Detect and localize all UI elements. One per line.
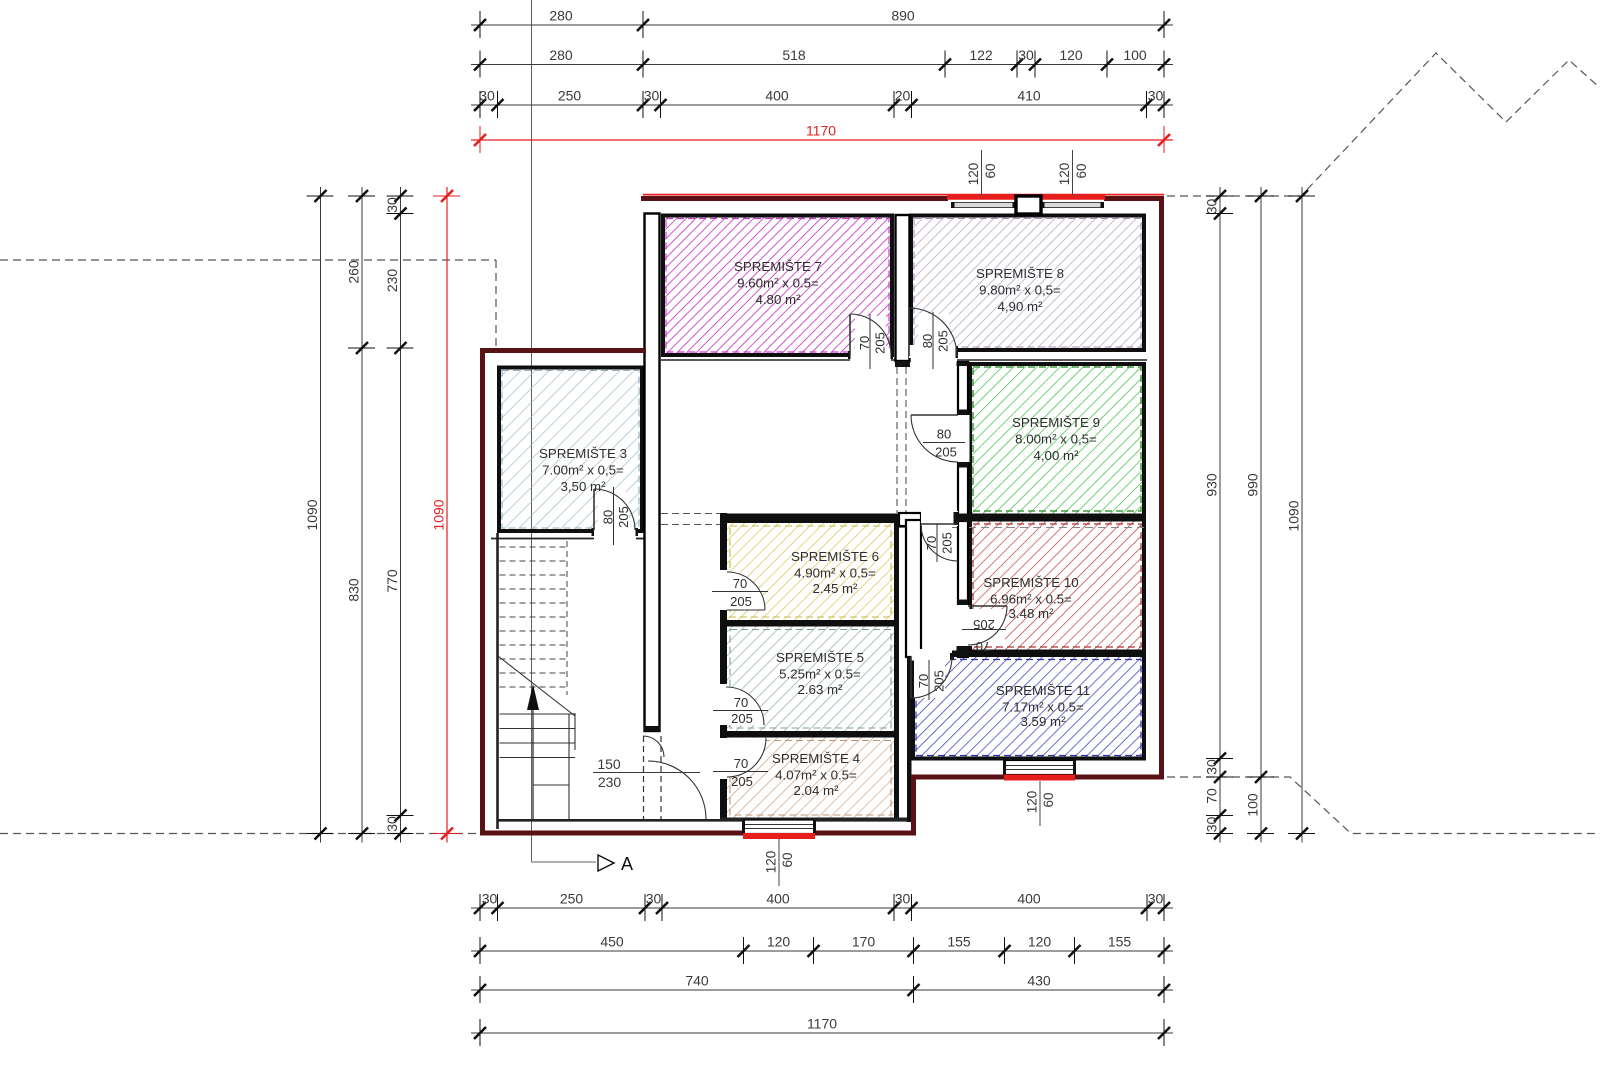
svg-text:120: 120 [1057, 163, 1072, 186]
svg-text:205: 205 [940, 532, 955, 554]
svg-text:280: 280 [549, 47, 573, 63]
svg-text:410: 410 [1017, 88, 1041, 104]
svg-text:1090: 1090 [431, 499, 447, 530]
svg-text:150: 150 [597, 756, 621, 772]
svg-text:205: 205 [873, 332, 888, 354]
svg-text:30: 30 [1204, 199, 1220, 215]
svg-text:3.48 m²: 3.48 m² [1008, 606, 1054, 621]
svg-text:70: 70 [734, 695, 748, 710]
svg-text:120: 120 [1025, 791, 1040, 814]
svg-text:4,90 m²: 4,90 m² [997, 299, 1043, 314]
svg-text:8.00m² x 0,5=: 8.00m² x 0,5= [1015, 432, 1097, 447]
svg-text:120: 120 [764, 851, 779, 874]
svg-text:100: 100 [1123, 47, 1147, 63]
svg-text:120: 120 [1059, 47, 1083, 63]
svg-text:4,00 m²: 4,00 m² [1033, 448, 1079, 463]
svg-text:SPREMIŠTE 6: SPREMIŠTE 6 [791, 549, 879, 564]
svg-text:30: 30 [895, 891, 911, 907]
svg-text:70: 70 [1204, 788, 1220, 804]
svg-text:205: 205 [731, 774, 753, 789]
svg-text:9.60m² x 0.5=: 9.60m² x 0.5= [737, 276, 819, 291]
svg-text:205: 205 [731, 711, 753, 726]
svg-text:30: 30 [1148, 891, 1164, 907]
svg-text:60: 60 [1074, 163, 1089, 178]
svg-text:120: 120 [1028, 934, 1052, 950]
svg-text:120: 120 [767, 934, 791, 950]
svg-text:SPREMIŠTE 9: SPREMIŠTE 9 [1012, 415, 1100, 430]
svg-text:4.90m² x 0.5=: 4.90m² x 0.5= [794, 566, 876, 581]
svg-text:60: 60 [1041, 792, 1056, 807]
svg-text:30: 30 [384, 197, 400, 213]
svg-text:60: 60 [780, 852, 795, 867]
svg-text:70: 70 [733, 576, 747, 591]
svg-text:3.59 m²: 3.59 m² [1020, 714, 1066, 729]
svg-text:7.17m² x 0.5=: 7.17m² x 0.5= [1002, 700, 1084, 715]
svg-text:930: 930 [1204, 473, 1220, 497]
svg-text:SPREMIŠTE 10: SPREMIŠTE 10 [983, 575, 1078, 590]
svg-text:30: 30 [479, 88, 495, 104]
svg-text:70: 70 [916, 674, 931, 688]
svg-text:1090: 1090 [304, 499, 320, 530]
svg-text:400: 400 [766, 891, 790, 907]
svg-text:122: 122 [969, 47, 993, 63]
svg-text:155: 155 [1108, 934, 1132, 950]
svg-text:250: 250 [558, 88, 582, 104]
svg-text:120: 120 [966, 163, 981, 186]
svg-text:SPREMIŠTE 3: SPREMIŠTE 3 [539, 446, 627, 461]
svg-text:6.96m² x 0.5=: 6.96m² x 0.5= [990, 592, 1072, 607]
svg-text:1170: 1170 [807, 1016, 837, 1032]
svg-text:SPREMIŠTE 5: SPREMIŠTE 5 [776, 650, 864, 665]
svg-text:30: 30 [1204, 759, 1220, 775]
svg-text:70: 70 [857, 336, 872, 350]
svg-text:830: 830 [346, 578, 362, 602]
svg-text:2.04 m²: 2.04 m² [793, 783, 839, 798]
svg-text:170: 170 [852, 934, 876, 950]
svg-text:230: 230 [384, 269, 400, 293]
svg-text:5.25m² x 0.5=: 5.25m² x 0.5= [779, 667, 861, 682]
svg-text:7.00m² x 0,5=: 7.00m² x 0,5= [542, 463, 624, 478]
svg-text:260: 260 [346, 260, 362, 284]
svg-text:30: 30 [482, 891, 498, 907]
svg-text:205: 205 [730, 594, 752, 609]
svg-text:70: 70 [734, 756, 748, 771]
svg-text:740: 740 [685, 973, 709, 989]
svg-text:30: 30 [644, 88, 660, 104]
svg-text:430: 430 [1027, 973, 1051, 989]
svg-text:230: 230 [598, 774, 622, 790]
svg-text:3,50 m²: 3,50 m² [560, 479, 606, 494]
svg-text:4.80 m²: 4.80 m² [755, 292, 801, 307]
svg-text:1170: 1170 [806, 123, 836, 139]
svg-text:4.07m² x 0.5=: 4.07m² x 0.5= [775, 768, 857, 783]
svg-text:80: 80 [920, 334, 935, 348]
svg-text:9.80m² x 0,5=: 9.80m² x 0,5= [979, 283, 1061, 298]
svg-text:20: 20 [895, 88, 911, 104]
svg-text:2.63 m²: 2.63 m² [797, 682, 843, 697]
svg-text:70: 70 [924, 536, 939, 550]
svg-text:SPREMIŠTE 7: SPREMIŠTE 7 [734, 259, 822, 274]
svg-text:205: 205 [932, 670, 947, 692]
svg-text:30: 30 [384, 816, 400, 832]
svg-text:205: 205 [973, 617, 995, 632]
svg-text:990: 990 [1245, 473, 1261, 497]
svg-text:30: 30 [1204, 817, 1220, 833]
svg-text:100: 100 [1245, 793, 1261, 817]
svg-text:SPREMIŠTE 8: SPREMIŠTE 8 [976, 266, 1064, 281]
svg-text:518: 518 [782, 47, 806, 63]
svg-text:890: 890 [891, 8, 915, 24]
svg-text:205: 205 [616, 506, 631, 528]
svg-text:400: 400 [765, 88, 789, 104]
svg-text:60: 60 [983, 163, 998, 178]
svg-text:70: 70 [976, 639, 990, 654]
svg-text:80: 80 [937, 427, 951, 442]
svg-text:770: 770 [384, 569, 400, 593]
svg-text:280: 280 [549, 8, 573, 24]
svg-text:155: 155 [947, 934, 971, 950]
svg-text:250: 250 [560, 891, 584, 907]
svg-text:205: 205 [936, 330, 951, 352]
svg-text:205: 205 [935, 445, 957, 460]
svg-text:450: 450 [600, 934, 624, 950]
svg-text:30: 30 [1018, 47, 1034, 63]
svg-text:400: 400 [1017, 891, 1041, 907]
svg-text:30: 30 [1148, 88, 1164, 104]
svg-text:2.45 m²: 2.45 m² [812, 581, 858, 596]
svg-text:80: 80 [601, 510, 616, 524]
svg-text:30: 30 [646, 891, 662, 907]
svg-text:1090: 1090 [1286, 500, 1302, 531]
svg-text:SPREMIŠTE 4: SPREMIŠTE 4 [772, 751, 860, 766]
svg-text:A: A [621, 854, 633, 874]
svg-text:SPREMIŠTE 11: SPREMIŠTE 11 [996, 683, 1090, 698]
